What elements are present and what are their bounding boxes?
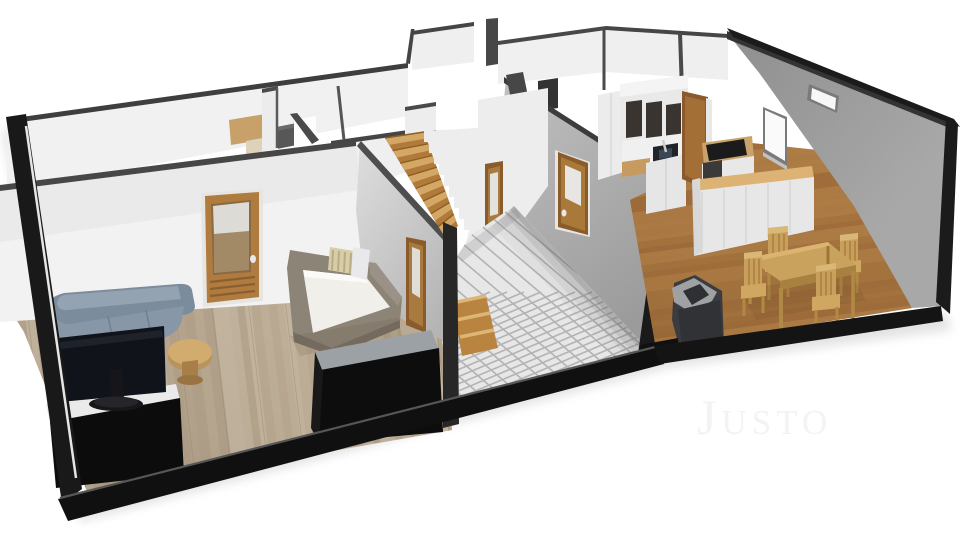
svg-text:Justo: Justo bbox=[697, 389, 832, 445]
